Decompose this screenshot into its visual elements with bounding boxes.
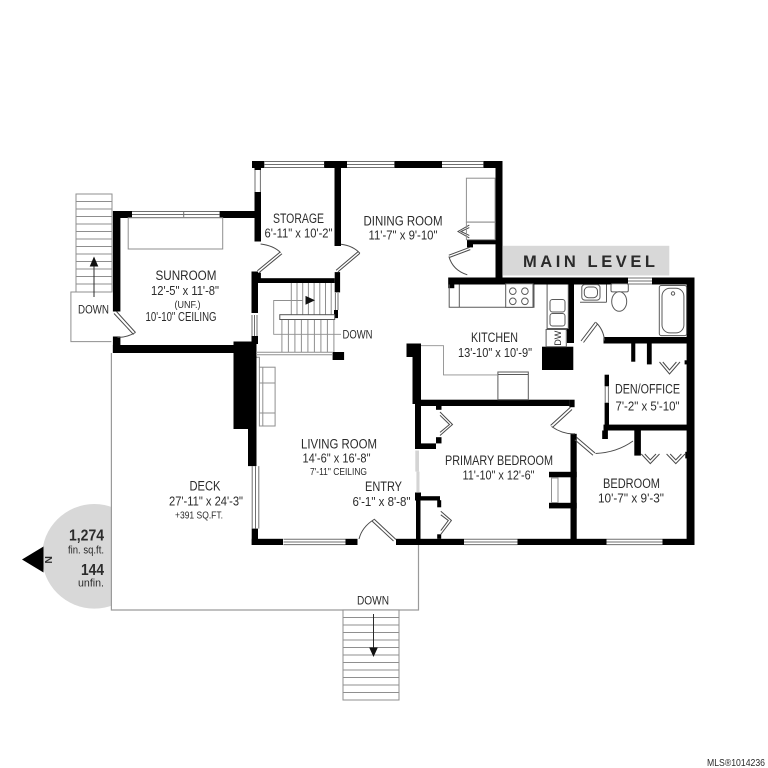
svg-text:12'-5" x 11'-8": 12'-5" x 11'-8" [151, 283, 219, 298]
svg-text:10'-10" CEILING: 10'-10" CEILING [146, 309, 217, 324]
svg-text:11'-7" x 9'-10": 11'-7" x 9'-10" [369, 228, 438, 243]
svg-text:DOWN: DOWN [357, 596, 389, 608]
svg-text:11'-10" x 12'-6": 11'-10" x 12'-6" [463, 468, 535, 483]
svg-text:BEDROOM: BEDROOM [603, 476, 660, 491]
svg-text:14'-6" x 16'-8": 14'-6" x 16'-8" [303, 451, 371, 466]
svg-text:6'-11" x 10'-2": 6'-11" x 10'-2" [265, 226, 333, 241]
svg-text:unfin.: unfin. [78, 578, 104, 590]
svg-text:144: 144 [81, 562, 104, 579]
svg-text:10'-7" x 9'-3": 10'-7" x 9'-3" [598, 491, 664, 506]
svg-text:13'-10" x 10'-9": 13'-10" x 10'-9" [458, 345, 532, 360]
svg-text:DOWN: DOWN [78, 305, 109, 317]
svg-text:+391 SQ.FT.: +391 SQ.FT. [175, 510, 223, 522]
svg-text:STORAGE: STORAGE [273, 211, 324, 226]
svg-text:7'-11" CEILING: 7'-11" CEILING [310, 466, 367, 478]
svg-text:N: N [43, 556, 55, 564]
svg-text:SUNROOM: SUNROOM [156, 268, 217, 283]
svg-text:DOWN: DOWN [343, 330, 373, 342]
svg-text:6'-1" x 8'-8": 6'-1" x 8'-8" [353, 494, 411, 509]
svg-text:LIVING ROOM: LIVING ROOM [301, 437, 377, 452]
svg-text:27'-11" x 24'-3": 27'-11" x 24'-3" [169, 494, 243, 509]
svg-text:DEN/OFFICE: DEN/OFFICE [615, 381, 680, 396]
svg-text:ENTRY: ENTRY [365, 479, 402, 494]
svg-text:DINING ROOM: DINING ROOM [364, 213, 443, 228]
svg-text:7'-2" x 5'-10": 7'-2" x 5'-10" [616, 399, 680, 414]
svg-text:DECK: DECK [190, 479, 221, 494]
svg-text:PRIMARY BEDROOM: PRIMARY BEDROOM [445, 453, 553, 468]
svg-text:KITCHEN: KITCHEN [471, 330, 518, 345]
svg-text:MAIN LEVEL: MAIN LEVEL [523, 253, 655, 271]
svg-text:DW: DW [553, 330, 563, 345]
svg-text:MLS®1014236: MLS®1014236 [707, 758, 765, 768]
svg-text:fin. sq.ft.: fin. sq.ft. [68, 545, 104, 557]
svg-text:1,274: 1,274 [69, 528, 104, 545]
